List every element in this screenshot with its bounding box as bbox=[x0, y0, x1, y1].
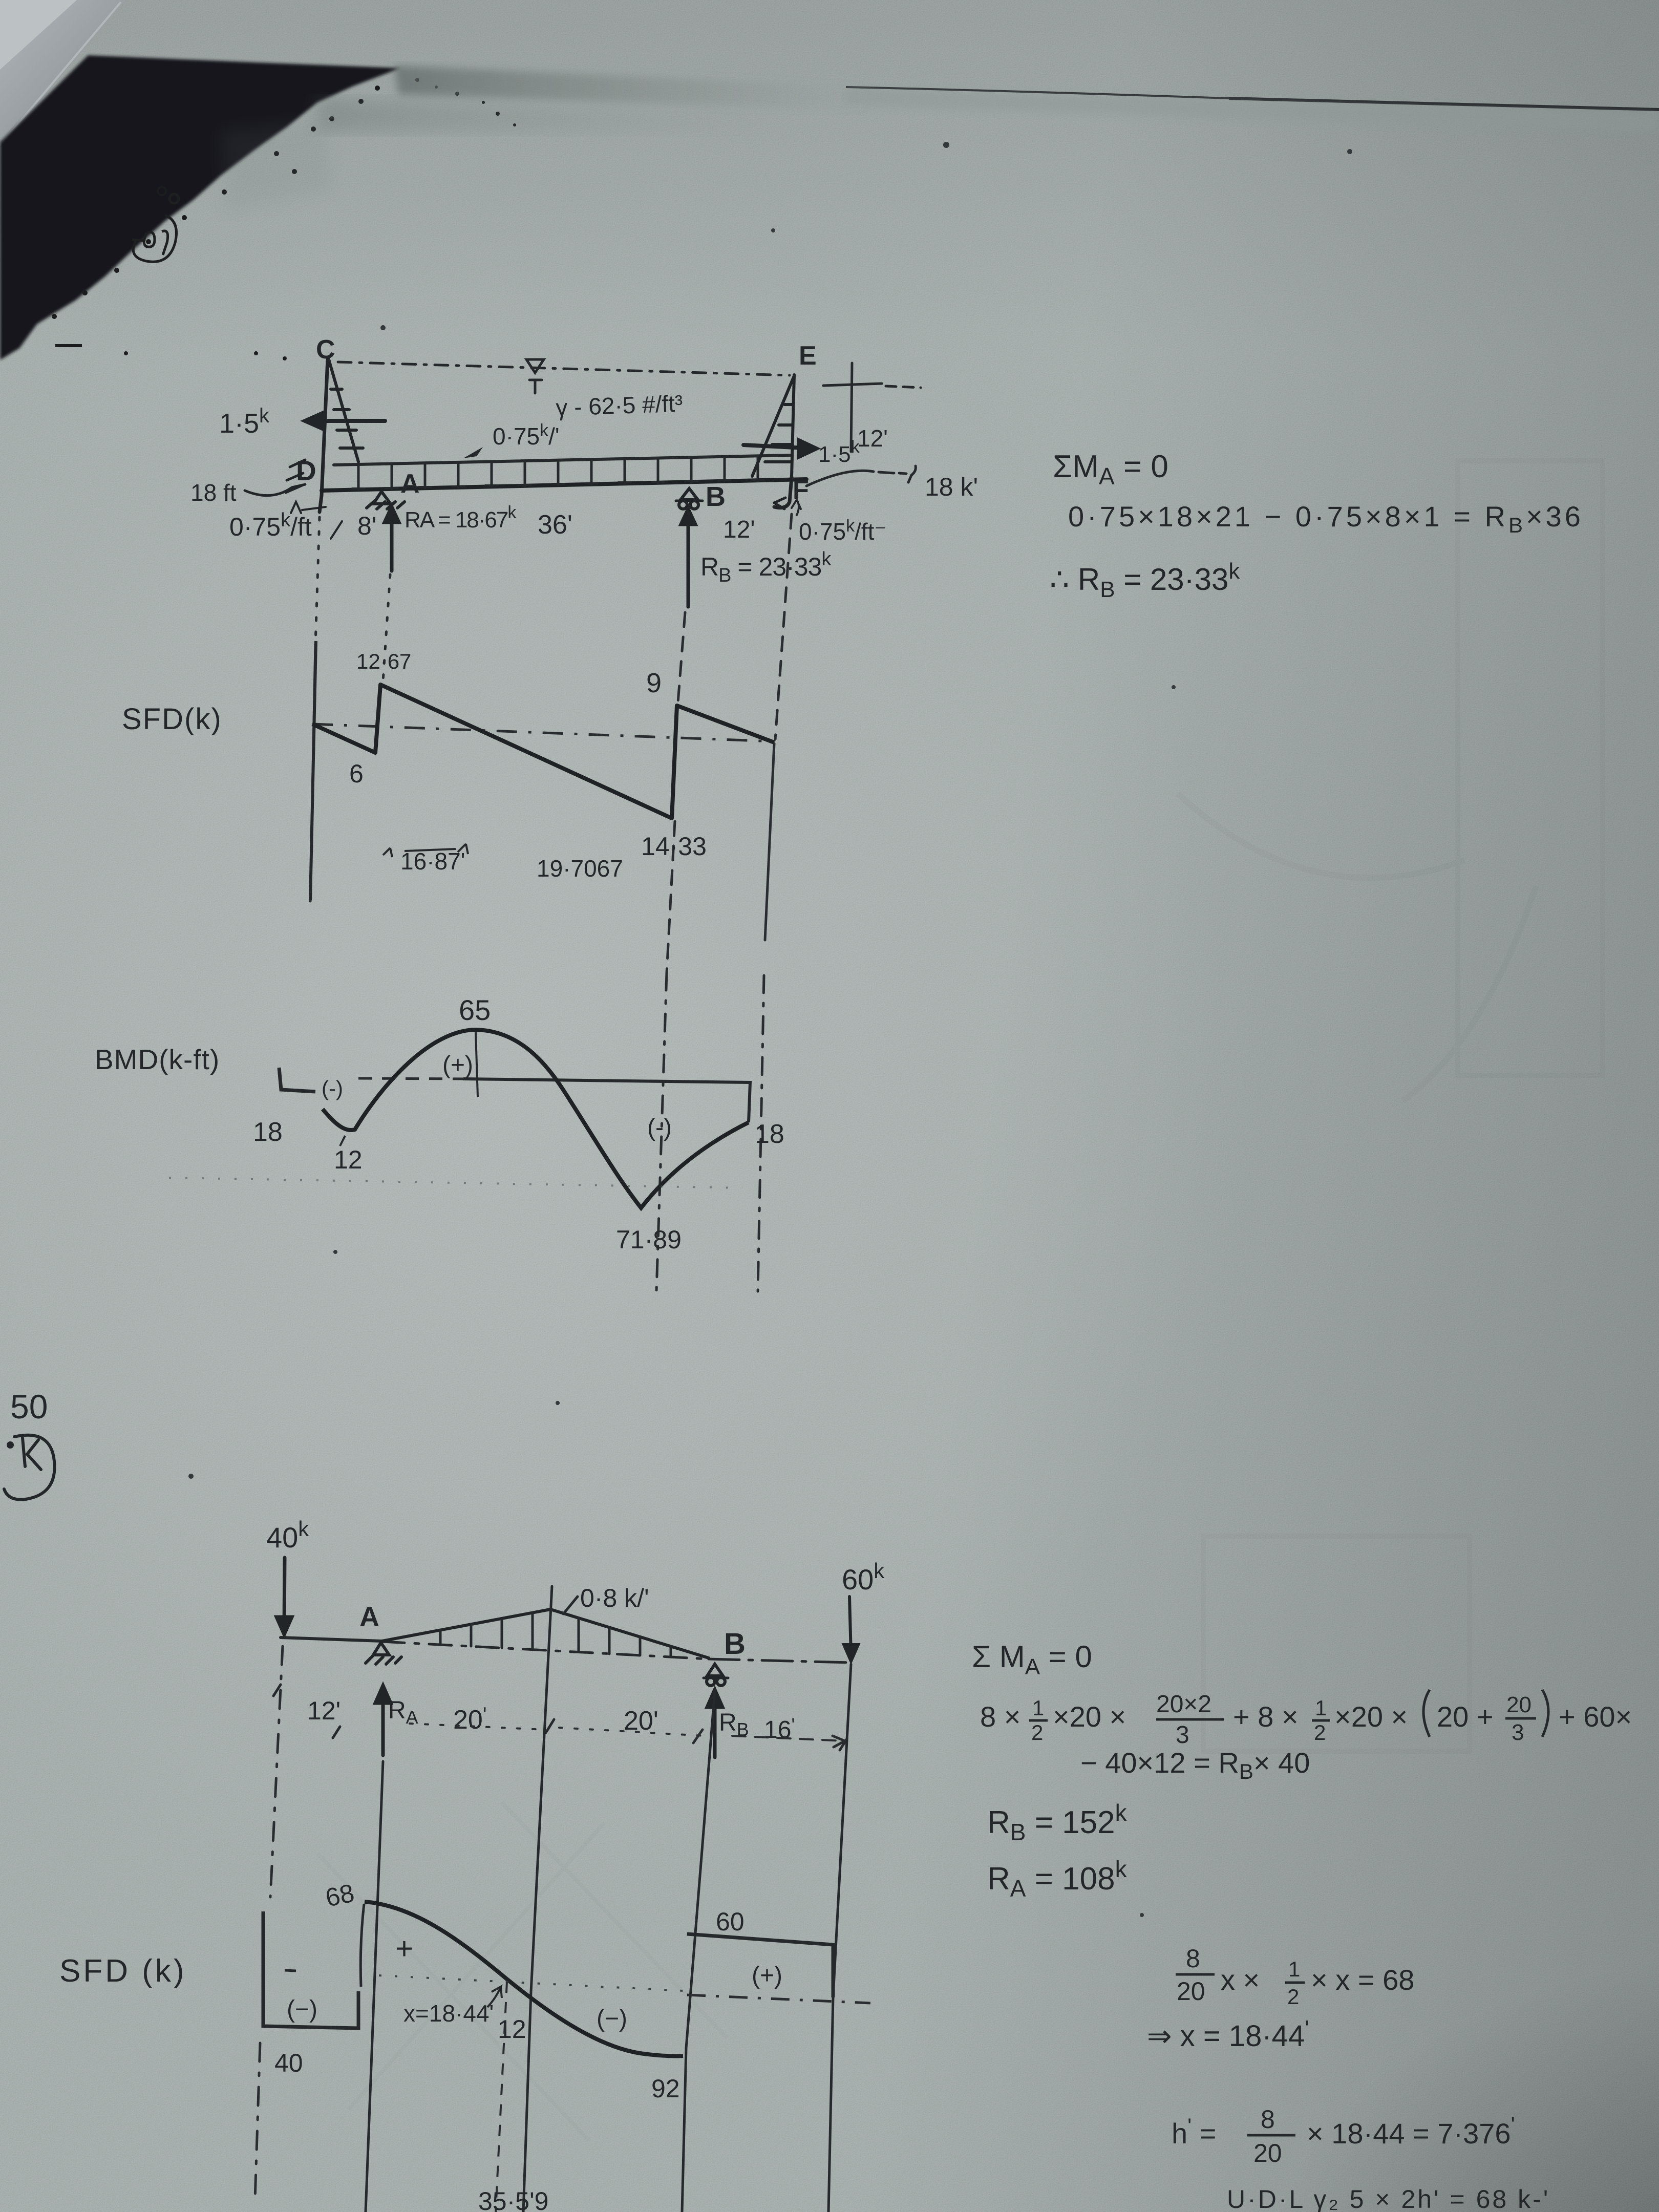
svg-text:8': 8' bbox=[357, 512, 376, 540]
svg-text:0·75k/': 0·75k/' bbox=[493, 421, 560, 450]
svg-text:×20 ×: ×20 × bbox=[1053, 1700, 1126, 1733]
svg-text:E: E bbox=[799, 341, 817, 371]
svg-text:12': 12' bbox=[307, 1696, 341, 1725]
svg-text:68: 68 bbox=[323, 1878, 357, 1912]
svg-text:× 18·44 = 7·376': × 18·44 = 7·376' bbox=[1307, 2112, 1515, 2150]
svg-text:× x = 68: × x = 68 bbox=[1311, 1964, 1414, 1996]
svg-text:F: F bbox=[793, 475, 809, 505]
svg-text:x ×: x × bbox=[1221, 1964, 1260, 1996]
svg-text:x=18·44': x=18·44' bbox=[403, 2000, 494, 2027]
svg-text:65: 65 bbox=[459, 994, 491, 1026]
svg-text:∴ RB = 23·33k: ∴ RB = 23·33k bbox=[1050, 559, 1240, 602]
svg-text:1: 1 bbox=[1032, 1696, 1044, 1720]
svg-text:B: B bbox=[724, 1627, 746, 1661]
svg-text:20×2: 20×2 bbox=[1156, 1691, 1211, 1718]
svg-text:18 ft: 18 ft bbox=[190, 479, 237, 506]
svg-text:0·75×18×21 − 0·75×8×1 = RB×3: 0·75×18×21 − 0·75×8×1 = RB×36 bbox=[1068, 500, 1584, 537]
svg-text:+ 60×: + 60× bbox=[1559, 1700, 1632, 1733]
svg-text:C: C bbox=[316, 335, 335, 365]
svg-text:16·87': 16·87' bbox=[400, 848, 465, 875]
svg-text:A: A bbox=[400, 469, 420, 499]
svg-text:92: 92 bbox=[651, 2074, 680, 2103]
svg-text:2: 2 bbox=[1031, 1720, 1043, 1745]
svg-text:×20 ×: ×20 × bbox=[1334, 1700, 1408, 1733]
svg-text:B: B bbox=[706, 481, 726, 512]
svg-text:12: 12 bbox=[334, 1145, 363, 1174]
svg-text:(−): (−) bbox=[287, 1996, 317, 2023]
svg-text:1: 1 bbox=[1288, 1957, 1300, 1981]
svg-text:20': 20' bbox=[624, 1706, 658, 1736]
svg-text:h' =: h' = bbox=[1172, 2114, 1216, 2150]
svg-text:20: 20 bbox=[1177, 1977, 1205, 2006]
svg-text:(−): (−) bbox=[597, 2005, 627, 2032]
svg-text:36': 36' bbox=[538, 510, 572, 540]
svg-text:20': 20' bbox=[453, 1704, 486, 1735]
svg-text:19·7067: 19·7067 bbox=[537, 855, 623, 882]
svg-text:20: 20 bbox=[1506, 1692, 1532, 1717]
svg-text:0·75k/ft⁻: 0·75k/ft⁻ bbox=[799, 516, 887, 545]
svg-text:71·89: 71·89 bbox=[616, 1225, 682, 1254]
svg-text:− 40×12 = RB× 40: − 40×12 = RB× 40 bbox=[1080, 1747, 1310, 1783]
svg-text:60: 60 bbox=[716, 1907, 745, 1936]
svg-text:0·8 k/': 0·8 k/' bbox=[580, 1584, 649, 1612]
svg-text:35·5'9: 35·5'9 bbox=[478, 2187, 548, 2212]
svg-text:BMD(k-ft): BMD(k-ft) bbox=[95, 1044, 220, 1075]
svg-text:12': 12' bbox=[857, 425, 888, 452]
svg-text:40: 40 bbox=[274, 2049, 303, 2077]
svg-text:8: 8 bbox=[1261, 2105, 1275, 2134]
svg-text:18 k': 18 k' bbox=[925, 473, 978, 501]
svg-text:12·67: 12·67 bbox=[356, 649, 411, 673]
svg-text:20: 20 bbox=[1253, 2139, 1282, 2167]
svg-text:6: 6 bbox=[349, 759, 364, 788]
svg-text:(-): (-) bbox=[322, 1076, 343, 1100]
svg-text:A: A bbox=[359, 1602, 379, 1632]
svg-text:SFD(k): SFD(k) bbox=[122, 703, 222, 736]
svg-text:γ - 62·5 #/ft³: γ - 62·5 #/ft³ bbox=[556, 390, 684, 421]
svg-text:2: 2 bbox=[1314, 1720, 1326, 1745]
svg-text:20 +: 20 + bbox=[1437, 1700, 1494, 1733]
svg-text:14·33: 14·33 bbox=[641, 832, 707, 861]
svg-text:12: 12 bbox=[498, 2015, 526, 2044]
svg-text:3: 3 bbox=[1512, 1720, 1524, 1745]
svg-text:18: 18 bbox=[755, 1119, 784, 1149]
svg-text:0·75k/ft: 0·75k/ft bbox=[229, 509, 312, 541]
svg-text:18: 18 bbox=[253, 1117, 283, 1147]
svg-text:⇒ x = 18·44': ⇒ x = 18·44' bbox=[1147, 2016, 1309, 2053]
svg-text:RA = 108k: RA = 108k bbox=[987, 1856, 1128, 1902]
svg-text:(+): (+) bbox=[752, 1962, 782, 1989]
svg-text:3: 3 bbox=[1176, 1721, 1189, 1749]
svg-text:RA = 18·67k: RA = 18·67k bbox=[405, 503, 517, 533]
svg-text:(+): (+) bbox=[442, 1052, 473, 1079]
svg-text:(-): (-) bbox=[647, 1114, 672, 1141]
svg-text:+: + bbox=[395, 1931, 413, 1966]
svg-text:1: 1 bbox=[1315, 1696, 1327, 1720]
svg-text:RB = 152k: RB = 152k bbox=[987, 1799, 1128, 1845]
svg-text:8: 8 bbox=[1186, 1944, 1200, 1973]
svg-text:2: 2 bbox=[1287, 1985, 1299, 2009]
svg-text:+ 8 ×: + 8 × bbox=[1233, 1700, 1299, 1733]
svg-text:50: 50 bbox=[10, 1388, 48, 1426]
svg-text:U·D·L γ₂ 5 × 2h' = 68 k-': U·D·L γ₂ 5 × 2h' = 68 k-' bbox=[1227, 2185, 1550, 2212]
svg-text:8 ×: 8 × bbox=[980, 1700, 1020, 1733]
svg-text:9: 9 bbox=[646, 668, 662, 698]
svg-text:12': 12' bbox=[723, 516, 755, 543]
svg-text:SFD (k): SFD (k) bbox=[59, 1953, 187, 1989]
